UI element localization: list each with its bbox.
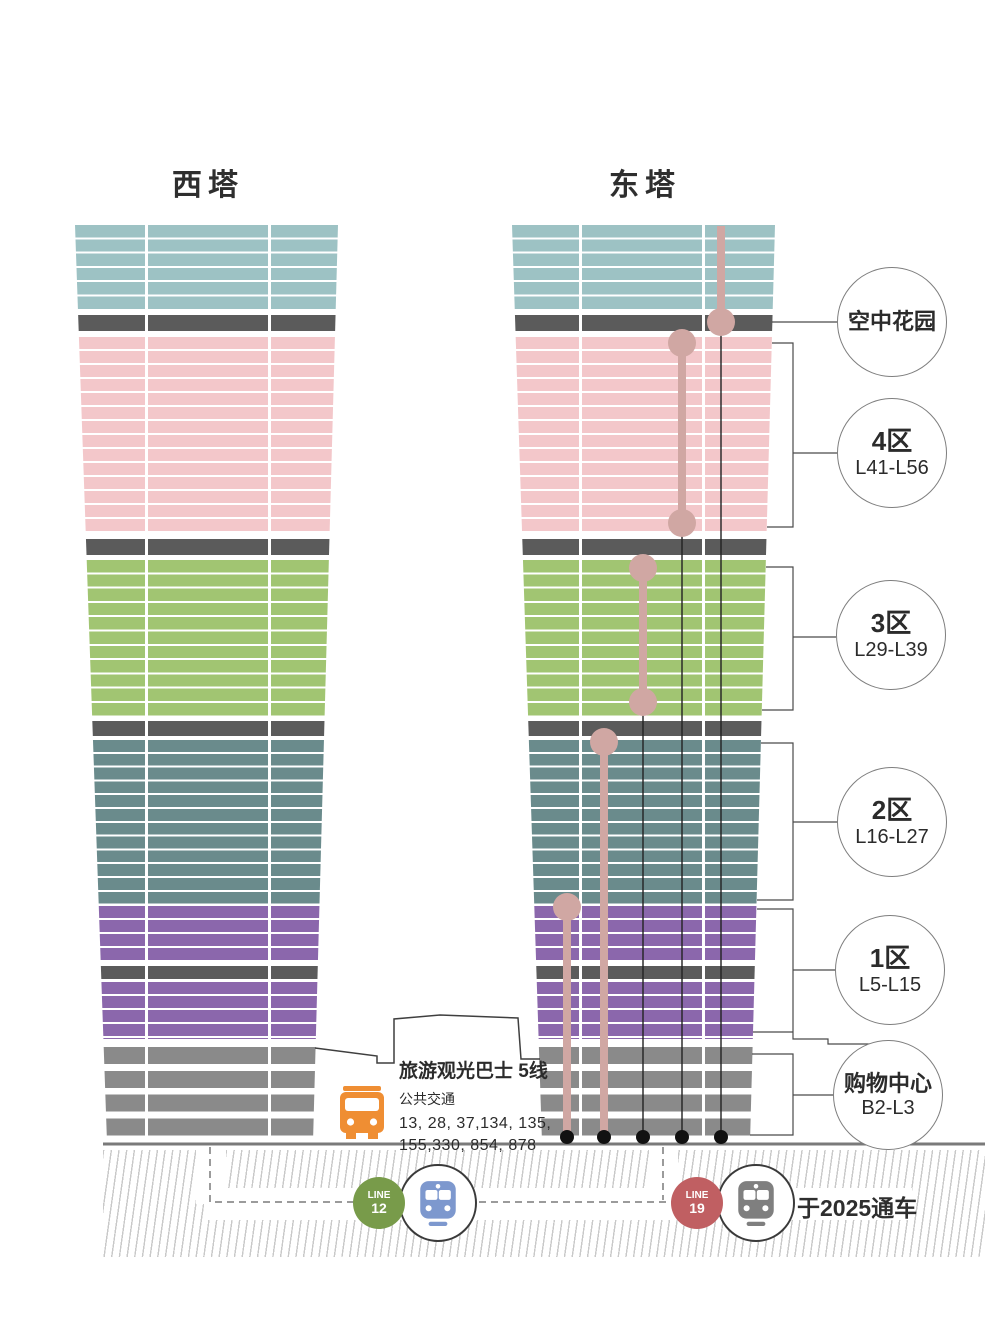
west-zone3-floors xyxy=(75,560,338,717)
zone4-label-circle: 4区 L41-L56 xyxy=(837,398,947,508)
bus-routes-line2: 155,330, 854, 878 xyxy=(399,1137,551,1155)
zone3-bracket xyxy=(762,567,836,710)
west-zone1-floors xyxy=(75,906,338,962)
west-mechanical-band xyxy=(75,539,338,555)
public-transit-label: 公共交通 xyxy=(399,1089,551,1109)
line19-badge: LINE 19 xyxy=(671,1177,723,1229)
east-sky-garden-band xyxy=(512,315,775,331)
west-mid-band xyxy=(75,966,338,979)
east-tower xyxy=(512,225,775,1142)
zone-label: 4区 xyxy=(872,428,912,455)
east-mid-band xyxy=(512,966,775,979)
bus-info-block: 旅游观光巴士 5线 公共交通 13, 28, 37,134, 135, 155,… xyxy=(399,1056,551,1159)
west-sky-garden-band xyxy=(75,315,338,331)
zone1-label-circle: 1区 L5-L15 xyxy=(835,915,945,1025)
zone2-label-circle: 2区 L16-L27 xyxy=(837,767,947,877)
zone-floors: L29-L39 xyxy=(854,640,927,660)
zone-label: 1区 xyxy=(870,945,910,972)
east-mechanical-band xyxy=(512,539,775,555)
column-gap xyxy=(268,225,271,1142)
west-zone1-floors xyxy=(75,982,338,1039)
east-zone1-floors xyxy=(512,982,775,1039)
zone-floors: L5-L15 xyxy=(859,975,921,995)
east-zone1-floors xyxy=(512,906,775,962)
west-tower-title: 西塔 xyxy=(108,160,308,204)
east-zone3-floors xyxy=(512,560,775,717)
bus-routes-line1: 13, 28, 37,134, 135, xyxy=(399,1115,551,1133)
east-mall-floors xyxy=(512,1047,775,1142)
sky-garden-label-circle: 空中花园 xyxy=(837,267,947,377)
zone-floors: L16-L27 xyxy=(855,827,928,847)
east-zone4-floors xyxy=(512,337,775,533)
train-icon xyxy=(417,1179,459,1227)
tour-bus-line: 旅游观光巴士 5线 xyxy=(399,1056,551,1083)
zone-label: 购物中心 xyxy=(844,1072,932,1095)
west-tower xyxy=(75,225,338,1142)
zone3-label-circle: 3区 L29-L39 xyxy=(836,580,946,690)
west-zone4-floors xyxy=(75,337,338,533)
line-badge-number: 19 xyxy=(689,1201,705,1216)
zone2-bracket xyxy=(757,743,837,900)
zone-floors: B2-L3 xyxy=(861,1098,914,1118)
mall-bracket xyxy=(750,1054,833,1135)
east-mechanical-band xyxy=(512,721,775,736)
line-badge-number: 12 xyxy=(371,1201,387,1216)
tower-zoning-diagram: 西塔 东塔 xyxy=(0,0,1007,1329)
east-zone2-floors xyxy=(512,740,775,905)
east-roof-zone xyxy=(512,225,775,311)
metro-station-line19 xyxy=(717,1164,795,1242)
column-gap xyxy=(702,225,705,1142)
mall-label-circle: 购物中心 B2-L3 xyxy=(833,1040,943,1150)
east-tower-title: 东塔 xyxy=(545,160,745,204)
zone-label: 2区 xyxy=(872,797,912,824)
column-gap xyxy=(145,225,148,1142)
zone-label: 空中花园 xyxy=(848,310,936,333)
metro-route-clearing xyxy=(196,1150,226,1204)
zone4-bracket xyxy=(767,343,837,527)
line12-badge: LINE 12 xyxy=(353,1177,405,1229)
bus-icon xyxy=(338,1086,386,1140)
metro-station-line12 xyxy=(399,1164,477,1242)
column-gap xyxy=(579,225,582,1142)
west-zone2-floors xyxy=(75,740,338,905)
zone-floors: L41-L56 xyxy=(855,458,928,478)
west-mechanical-band xyxy=(75,721,338,736)
line19-opening-note: 于2025通车 xyxy=(797,1189,917,1223)
zone-label: 3区 xyxy=(871,610,911,637)
west-roof-zone xyxy=(75,225,338,311)
train-icon xyxy=(735,1179,777,1227)
west-mall-floors xyxy=(75,1047,338,1142)
